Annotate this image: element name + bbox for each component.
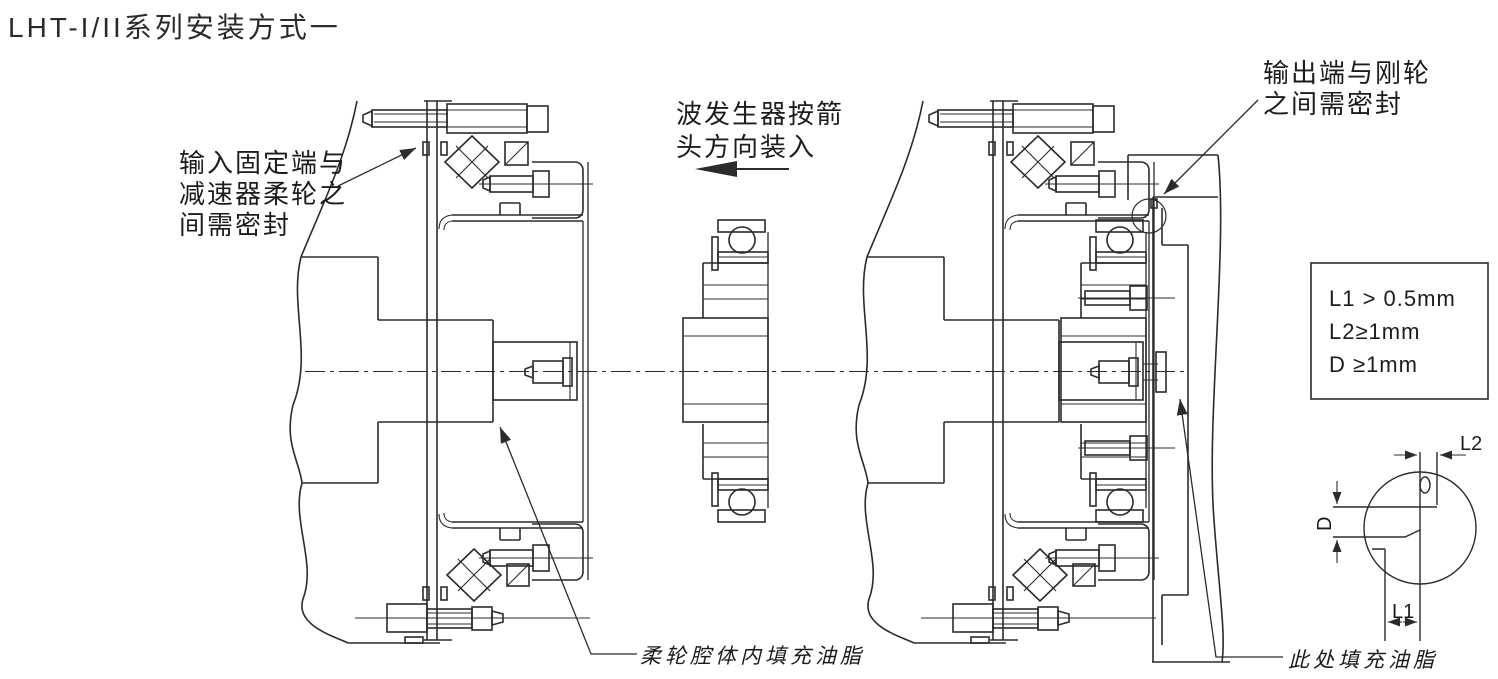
- dimension-label-l2: L2: [1460, 433, 1482, 456]
- output-seal-leader: [1164, 100, 1258, 194]
- detail-dimension-lines: [1337, 455, 1466, 622]
- page-title: LHT-I/II系列安装方式一: [8, 6, 341, 46]
- annotation-output-seal: 输出端与刚轮 之间需密封: [1263, 58, 1431, 120]
- annotation-flexspline-grease: 柔轮腔体内填充油脂: [640, 640, 865, 670]
- tolerance-box-text: L1 > 0.5mm L2≥1mm D ≥1mm: [1329, 282, 1456, 381]
- dimension-label-l1: L1: [1392, 601, 1414, 624]
- annotation-wave-generator: 波发生器按箭 头方向装入: [676, 98, 844, 164]
- grease-here-leader: [1180, 399, 1283, 657]
- flexspline-grease-leader: [500, 427, 637, 654]
- drawing-canvas: LHT-I/II系列安装方式一 输入固定端与 减速器柔轮之 间需密封 波发生器按…: [0, 0, 1498, 679]
- annotation-input-seal: 输入固定端与 减速器柔轮之 间需密封: [179, 148, 347, 241]
- annotation-grease-here: 此处填充油脂: [1288, 644, 1438, 674]
- dimension-label-d: D: [1314, 517, 1337, 531]
- input-seal-leader: [338, 148, 416, 186]
